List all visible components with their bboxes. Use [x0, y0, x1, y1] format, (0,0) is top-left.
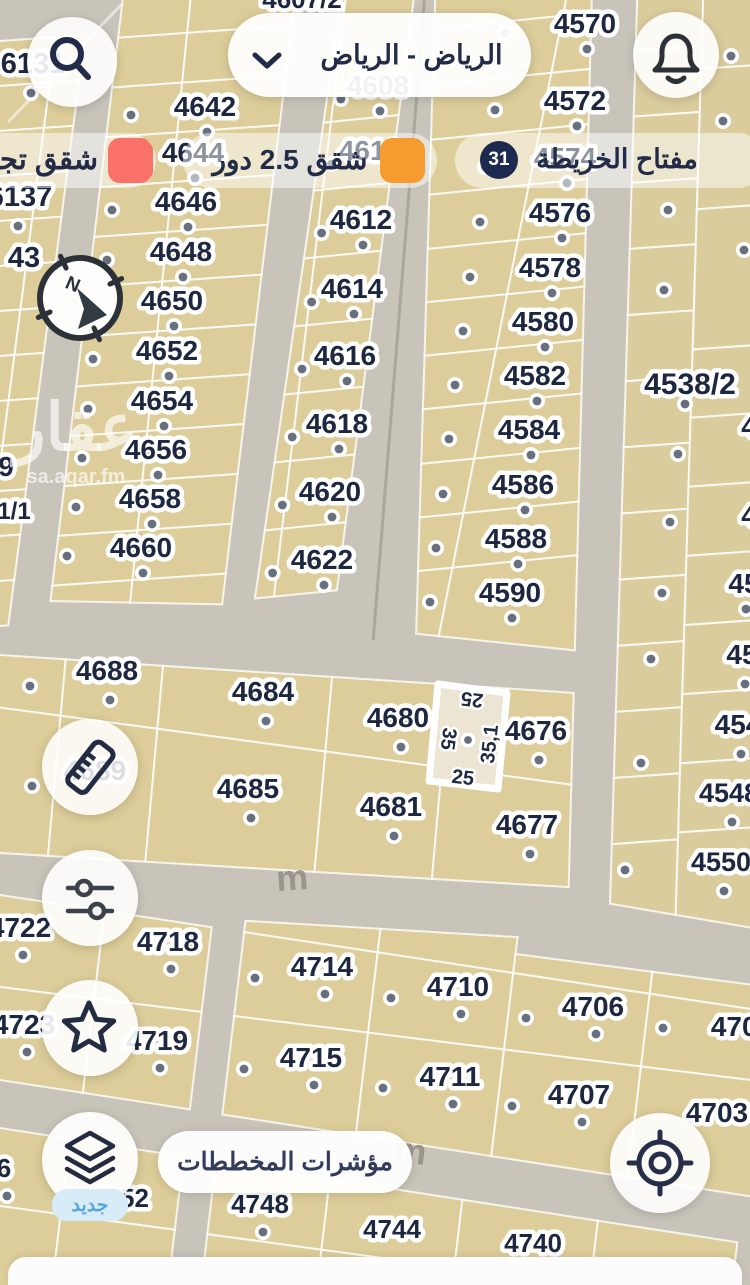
svg-text:35: 35	[436, 726, 461, 751]
svg-text:4614: 4614	[321, 273, 384, 304]
svg-text:4607/2: 4607/2	[262, 0, 342, 14]
svg-text:4576: 4576	[529, 197, 591, 228]
svg-text:4710: 4710	[427, 971, 489, 1002]
svg-text:4707: 4707	[548, 1079, 610, 1110]
svg-text:4578: 4578	[519, 252, 581, 283]
svg-text:4680: 4680	[367, 702, 429, 733]
svg-text:4650: 4650	[141, 285, 203, 316]
svg-text:25: 25	[460, 687, 485, 712]
svg-text:4612: 4612	[330, 204, 392, 235]
svg-text:4570: 4570	[554, 8, 616, 39]
svg-text:4622: 4622	[291, 544, 353, 575]
svg-text:4580: 4580	[512, 306, 574, 337]
svg-text:4590: 4590	[479, 577, 541, 608]
svg-text:4685: 4685	[217, 773, 279, 804]
svg-text:4681: 4681	[360, 791, 422, 822]
svg-text:4711: 4711	[420, 1061, 481, 1092]
svg-text:45: 45	[728, 568, 750, 599]
svg-text:45: 45	[726, 639, 750, 670]
svg-text:35,1: 35,1	[477, 724, 503, 765]
svg-text:4652: 4652	[136, 335, 198, 366]
svg-text:4: 4	[741, 500, 750, 531]
svg-text:m: m	[275, 856, 310, 899]
svg-text:4572: 4572	[544, 85, 606, 116]
svg-text:4538/2: 4538/2	[644, 368, 736, 401]
svg-text:4642: 4642	[174, 91, 236, 122]
svg-text:4718: 4718	[137, 926, 199, 957]
svg-text:454: 454	[715, 709, 750, 740]
svg-text:4646: 4646	[155, 186, 217, 217]
svg-text:4715: 4715	[280, 1042, 342, 1073]
svg-text:4744: 4744	[363, 1214, 421, 1244]
svg-text:4748: 4748	[231, 1189, 289, 1219]
svg-text:4648: 4648	[150, 236, 212, 267]
svg-text:1/1: 1/1	[0, 498, 31, 525]
svg-text:4548: 4548	[699, 778, 750, 808]
svg-text:4676: 4676	[505, 715, 567, 746]
svg-text:4688: 4688	[76, 655, 138, 686]
svg-text:4660: 4660	[110, 532, 172, 563]
svg-text:4714: 4714	[291, 951, 354, 982]
svg-text:4618: 4618	[306, 408, 368, 439]
svg-text:4: 4	[741, 411, 750, 442]
svg-text:4702: 4702	[711, 1011, 750, 1042]
svg-text:4677: 4677	[496, 809, 558, 840]
svg-text:4706: 4706	[562, 991, 624, 1022]
svg-text:4620: 4620	[299, 476, 361, 507]
svg-text:4550: 4550	[691, 847, 750, 877]
svg-text:6: 6	[0, 1153, 11, 1183]
svg-text:4582: 4582	[504, 360, 566, 391]
svg-text:4584: 4584	[498, 414, 561, 445]
svg-text:4684: 4684	[232, 676, 295, 707]
svg-text:25: 25	[450, 766, 475, 791]
svg-text:4588: 4588	[485, 523, 547, 554]
svg-text:4740: 4740	[504, 1228, 562, 1258]
svg-text:4586: 4586	[492, 469, 554, 500]
svg-text:4616: 4616	[314, 340, 376, 371]
